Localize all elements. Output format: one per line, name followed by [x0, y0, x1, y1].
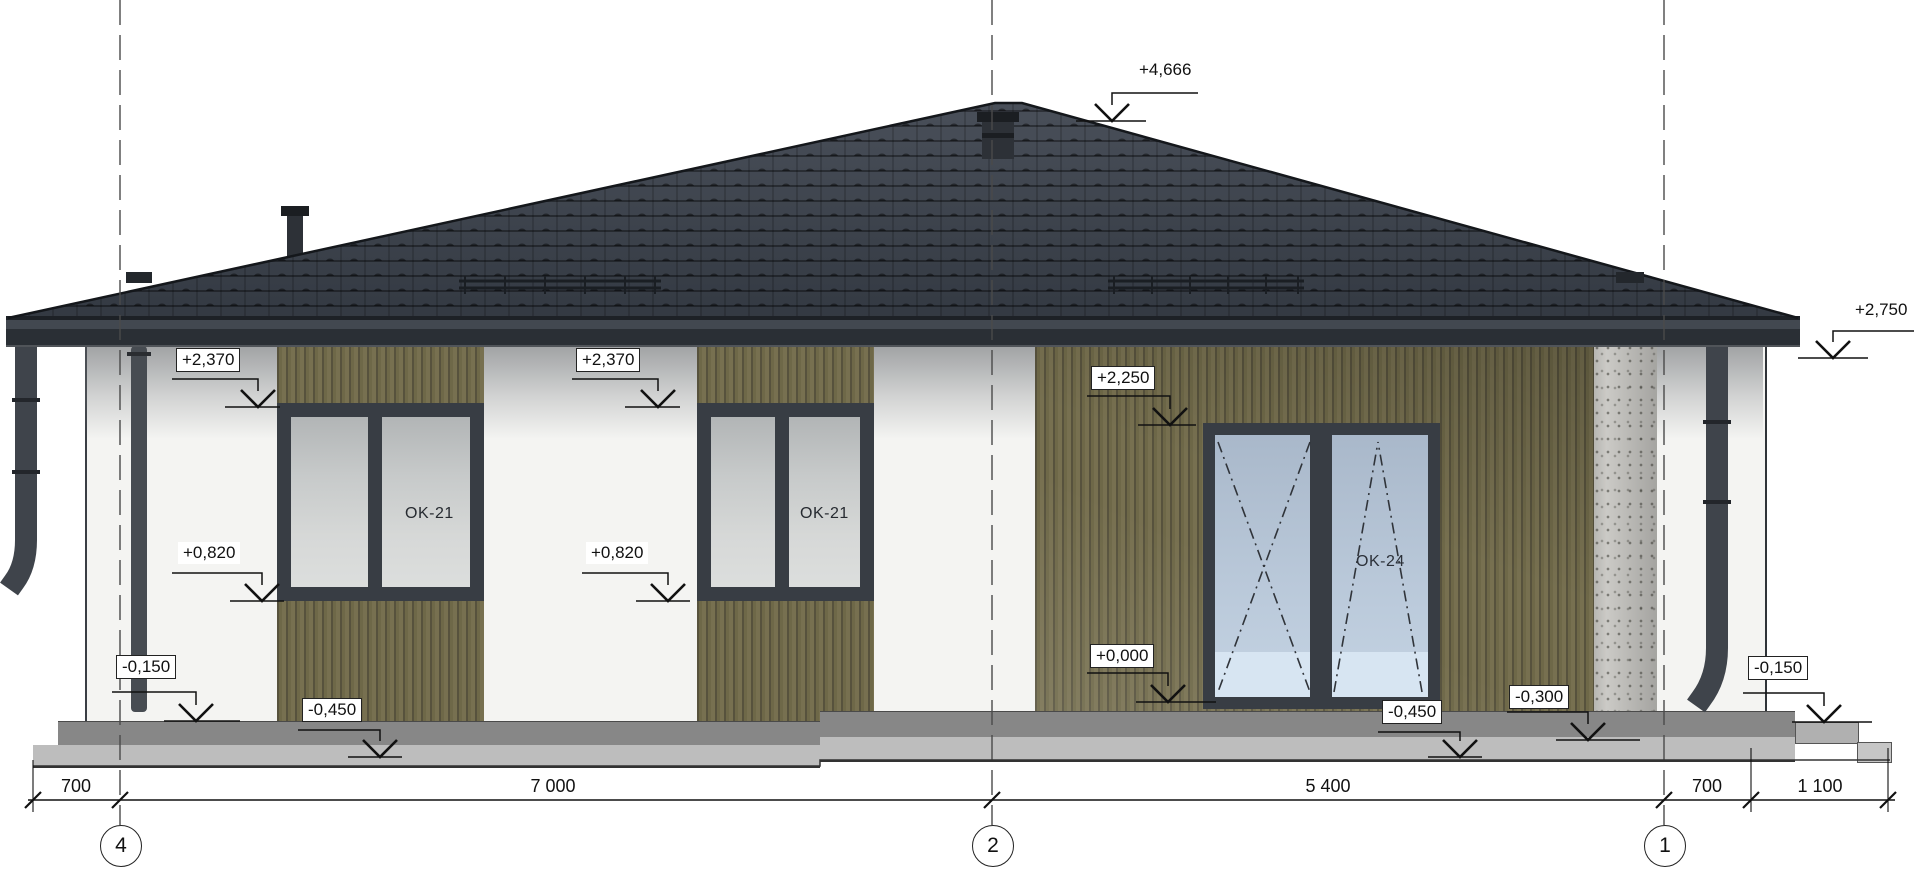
axis-bubble-1: 1	[1644, 825, 1686, 867]
eave-fascia	[6, 316, 1800, 347]
door-glass-right-bottom	[1332, 652, 1428, 697]
siding-above-window-1	[277, 344, 484, 404]
downspout-left-strap-2	[12, 470, 40, 474]
window-1-tag: OK-21	[405, 505, 454, 523]
elevation-mark-window-head-2: +2,370	[576, 348, 640, 372]
axis-bubble-4: 4	[100, 825, 142, 867]
dim-7000: 7 000	[527, 776, 578, 797]
window-2-glass-left	[711, 417, 775, 587]
step-2	[1857, 742, 1892, 763]
window-1-glass-right	[382, 417, 470, 587]
dim-700-right: 700	[1689, 776, 1725, 797]
elevation-mark-ground-right: -0,150	[1748, 656, 1808, 680]
downspout-left-strap-1	[12, 398, 40, 402]
dim-700-left: 700	[58, 776, 94, 797]
vent-pipe-cap	[281, 206, 309, 216]
elevation-mark-door-head: +2,250	[1091, 366, 1155, 390]
elevation-drawing: +4,666 +2,750 +2,370 +2,370 +2,250 +0,82…	[0, 0, 1920, 871]
window-1-mullion	[368, 417, 382, 587]
dim-1100: 1 100	[1794, 776, 1845, 797]
vent-pipe	[287, 214, 303, 260]
window-1-glass-left	[291, 417, 368, 587]
door-tag: OK-24	[1356, 553, 1405, 571]
downspout-left	[9, 320, 26, 589]
dimension-ticks	[25, 792, 1896, 808]
blind-area-left-band	[33, 745, 820, 768]
concrete-corner-pillar	[1594, 344, 1657, 722]
elevation-mark-window-head-1: +2,370	[176, 348, 240, 372]
door-glass-left-bottom	[1215, 652, 1310, 697]
elevation-mark-window-sill-1: +0,820	[178, 542, 240, 564]
window-2-mullion	[775, 417, 789, 587]
dim-5400: 5 400	[1302, 776, 1353, 797]
siding-below-window-2	[697, 601, 874, 721]
elevation-mark-blind-left: -0,450	[302, 698, 362, 722]
blind-area-right-band	[820, 737, 1795, 762]
window-2-glass-right	[789, 417, 860, 587]
roof	[6, 96, 1800, 320]
window-2-tag: OK-21	[800, 505, 849, 523]
ridge-chimney	[982, 117, 1014, 159]
elevation-mark-blind-right: -0,450	[1382, 700, 1442, 724]
door-mullion	[1310, 435, 1332, 697]
elevation-mark-window-sill-2: +0,820	[586, 542, 648, 564]
window-1	[277, 403, 484, 601]
window-2	[697, 403, 874, 601]
roof-vent-left-icon	[126, 272, 152, 283]
ridge-chimney-cap	[977, 112, 1019, 122]
step-1	[1795, 722, 1859, 744]
elevation-mark-ground-left: -0,150	[116, 655, 176, 679]
elevation-mark-porch-step: -0,300	[1509, 685, 1569, 709]
elevation-mark-ridge: +4,666	[1134, 59, 1196, 81]
plinth-left	[58, 721, 820, 746]
elevation-mark-eave-right: +2,750	[1850, 299, 1912, 321]
porch-slab-right	[820, 711, 1795, 738]
elevation-mark-threshold: +0,000	[1090, 644, 1154, 668]
siding-above-window-2	[697, 344, 874, 404]
axis-bubble-2: 2	[972, 825, 1014, 867]
ridge-chimney-band	[982, 133, 1014, 138]
